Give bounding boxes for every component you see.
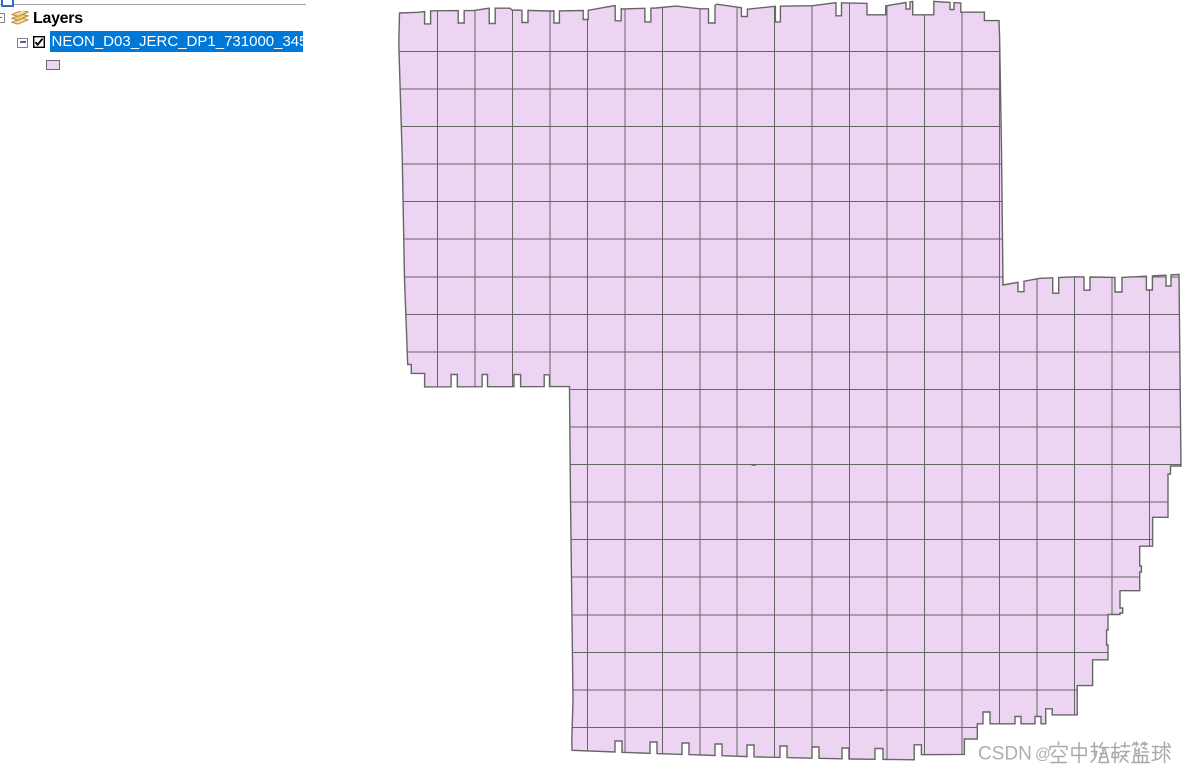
svg-text:CSDN: CSDN <box>978 744 1032 765</box>
svg-text:@: @ <box>1035 746 1051 763</box>
